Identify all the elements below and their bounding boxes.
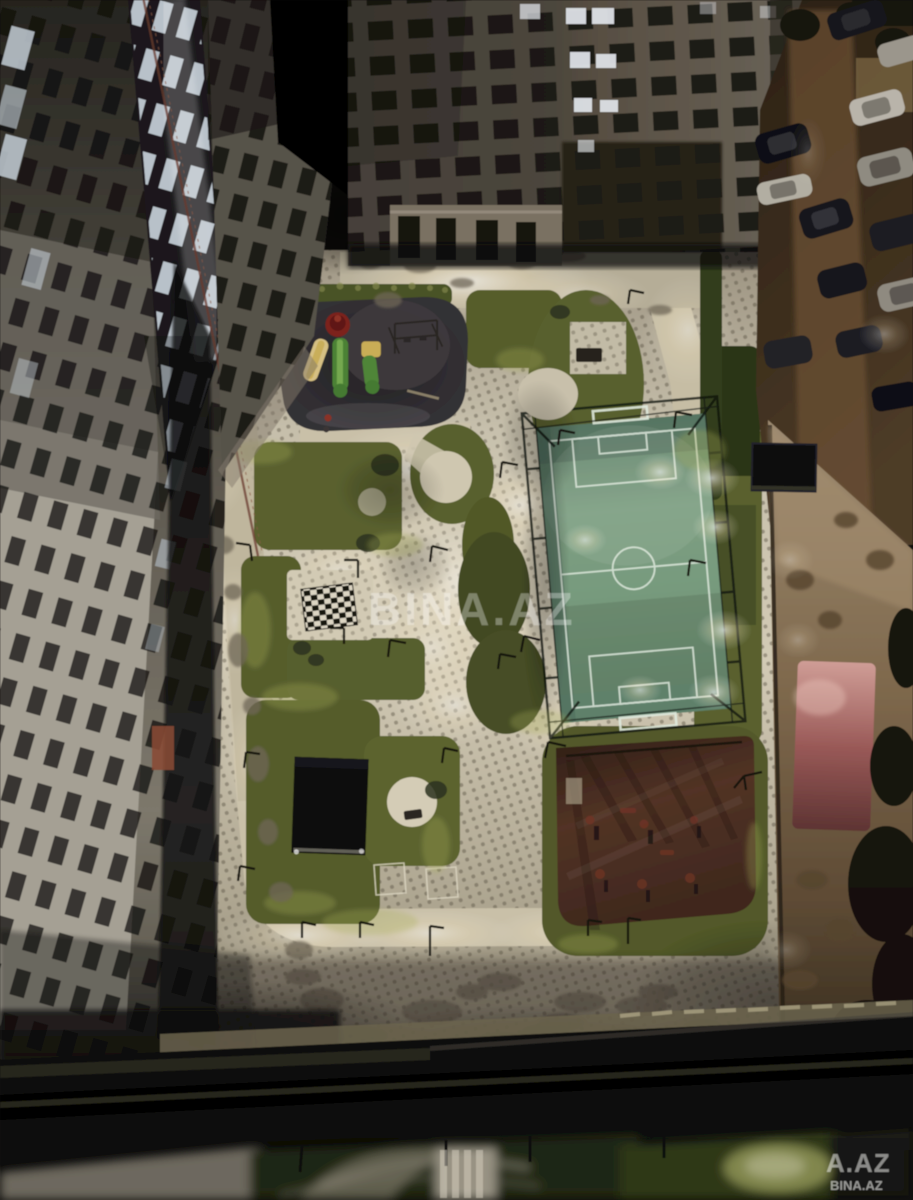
- svg-text:A.AZ: A.AZ: [826, 1148, 891, 1178]
- svg-text:BINA.AZ: BINA.AZ: [830, 1178, 883, 1193]
- svg-text:BINA.AZ: BINA.AZ: [368, 583, 576, 635]
